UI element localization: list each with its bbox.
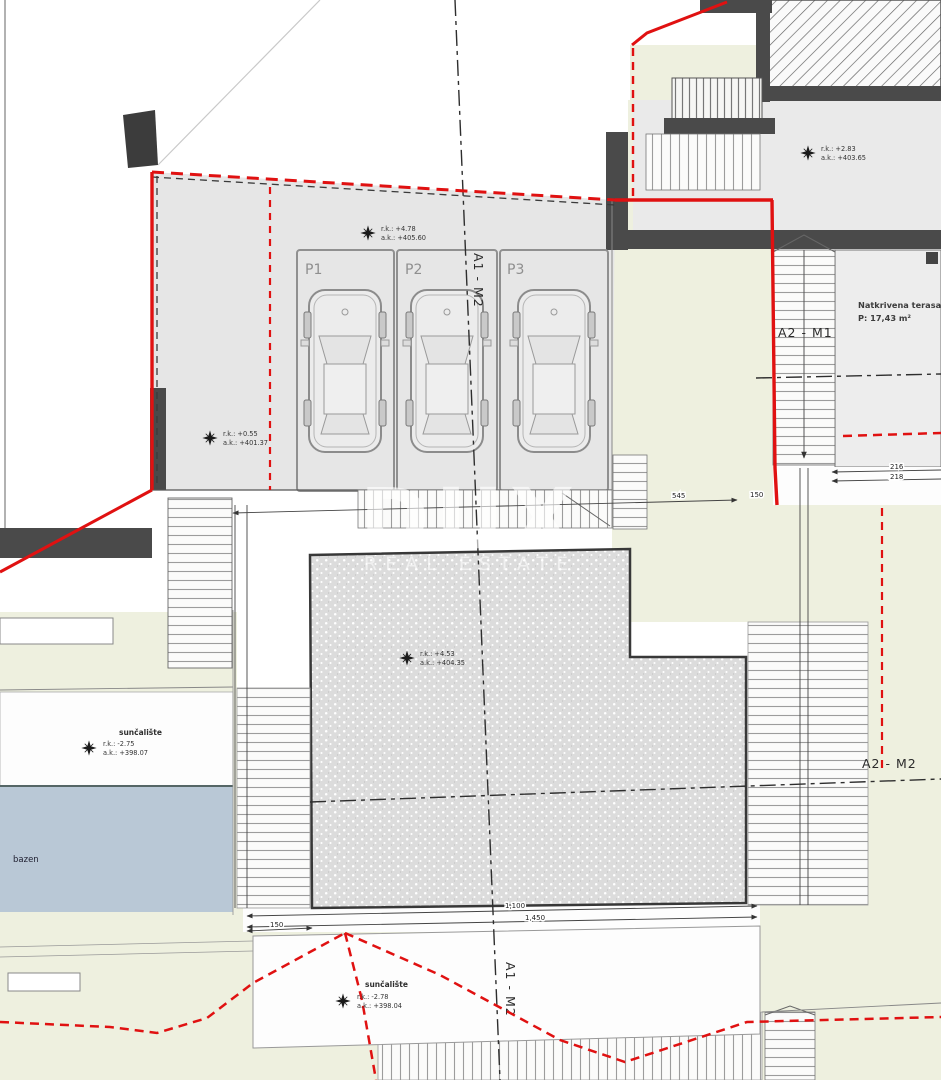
marker-left-ak: a.k.: +401.37	[223, 439, 268, 447]
pool-label: bazen	[13, 855, 39, 865]
sun-left-rk: r.k.: -2.75	[103, 740, 135, 748]
chimney-block	[123, 110, 158, 168]
terrace-name: Natkrivena terasa	[858, 300, 941, 310]
planter-box	[0, 618, 113, 644]
axis-label-a2m2: A2 - M2	[862, 756, 917, 771]
marker-parking-ak: a.k.: +405.60	[381, 234, 426, 242]
roof-ridge-line	[158, 0, 320, 165]
marker-ur-ak: a.k.: +403.65	[821, 154, 866, 162]
pool	[0, 786, 233, 912]
site-plan: P1 P2 P3	[0, 0, 941, 1080]
terrace-column	[926, 252, 938, 264]
dim-216: 216	[890, 463, 904, 471]
site-plan-svg: P1 P2 P3	[0, 0, 941, 1080]
covered-terrace-zone	[773, 235, 941, 505]
car-icon	[510, 290, 598, 452]
marker-ur-rk: r.k.: +2.83	[821, 145, 856, 153]
sun-left-title: sunčalište	[119, 728, 162, 737]
car-icon	[301, 290, 389, 452]
left-deck	[237, 688, 310, 908]
pergola-slats	[672, 78, 762, 120]
axis-label-a1m2-bottom: A1 - M2	[503, 962, 518, 1017]
dim-1450: 1,450	[525, 914, 545, 922]
dim-1100: 1,100	[505, 902, 525, 910]
side-stair	[613, 455, 647, 529]
sun-bottom-title: sunčalište	[365, 980, 408, 989]
marker-building-ak: a.k.: +404.35	[420, 659, 465, 667]
upper-stair-treads	[646, 134, 760, 190]
dim-545: 545	[672, 492, 685, 500]
garden-step	[8, 973, 80, 991]
pergola-beam	[664, 118, 775, 134]
horizontal-wall	[756, 86, 941, 101]
dim-150a: 150	[750, 491, 763, 499]
stall-label-p3: P3	[507, 262, 524, 278]
axis-label-a2m1: A2 - M1	[778, 325, 833, 340]
marker-building-rk: r.k.: +4.53	[420, 650, 455, 658]
marker-parking-rk: r.k.: +4.78	[381, 225, 416, 233]
watermark: DUX REAL ESTATE	[360, 470, 581, 575]
sun-bottom-rk: r.k.: -2.78	[357, 993, 389, 1001]
garden-right-mid	[612, 505, 941, 622]
axis-label-a1m2-top: A1 - M2	[471, 253, 486, 308]
stall-label-p2: P2	[405, 262, 422, 278]
dim-150b: 150	[270, 921, 283, 929]
terrace-dim-zone	[773, 467, 941, 505]
left-stair-ladder	[168, 498, 232, 668]
sun-left-ak: a.k.: +398.07	[103, 749, 148, 757]
bottom-right-ladder	[765, 1012, 815, 1080]
car-icon	[403, 290, 491, 452]
sun-terrace-left	[0, 692, 233, 786]
marker-left-rk: r.k.: +0.55	[223, 430, 258, 438]
sun-bottom-ak: a.k.: +398.04	[357, 1002, 402, 1010]
dim-218: 218	[890, 473, 903, 481]
hatched-roof	[768, 0, 941, 88]
stall-label-p1: P1	[305, 262, 322, 278]
watermark-line2: REAL ESTATE	[364, 553, 576, 575]
terrace-area: P: 17,43 m²	[858, 313, 911, 323]
boundary-top-right	[632, 2, 727, 45]
